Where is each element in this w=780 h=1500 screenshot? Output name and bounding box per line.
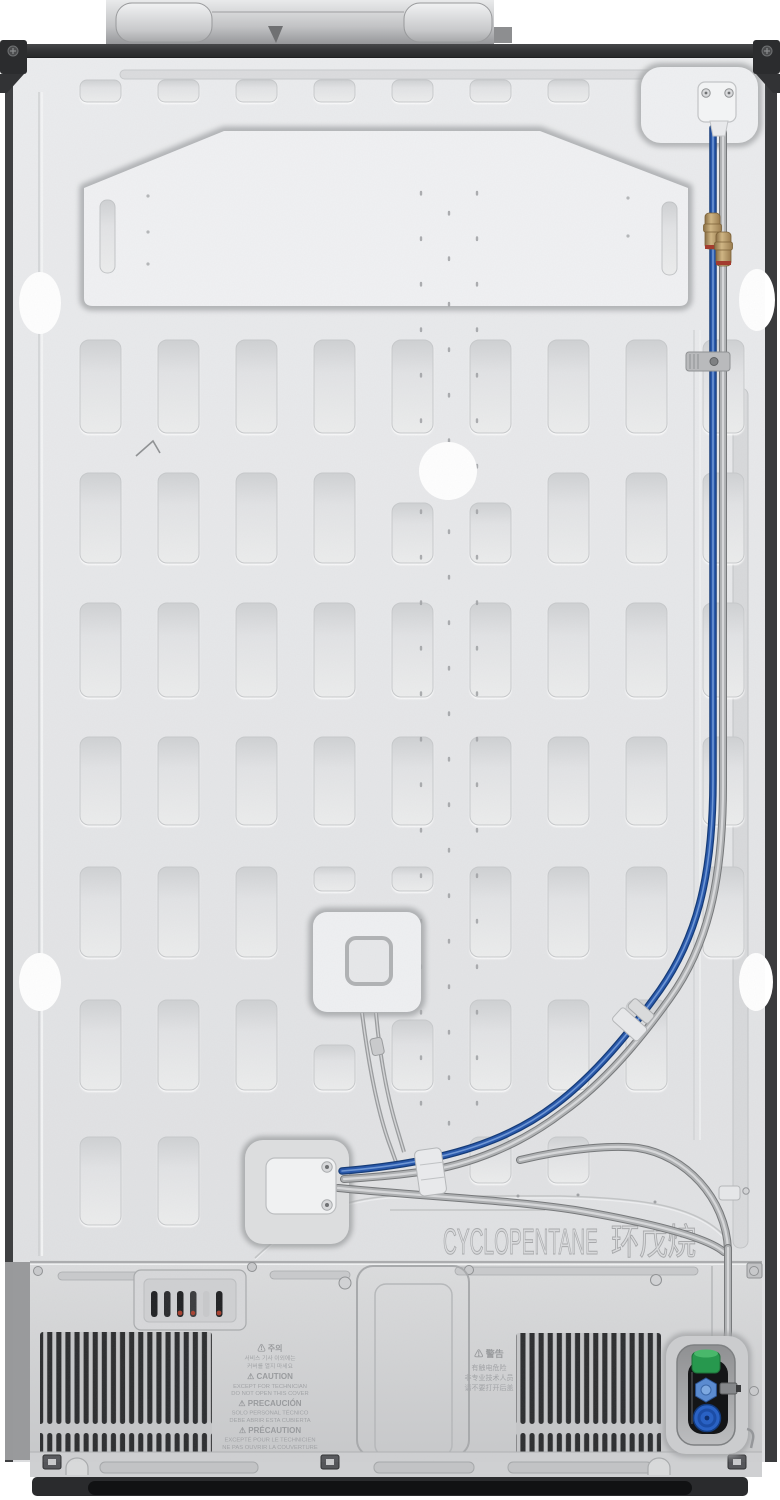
tube-clip-lower (414, 1147, 447, 1196)
top-condenser-tray (106, 0, 512, 44)
valve-green-cap (692, 1350, 720, 1374)
water-inlet-valve (666, 1336, 759, 1454)
metal-texture (13, 58, 765, 1462)
base-shadow (32, 1477, 748, 1496)
pocket-side-hole (750, 1387, 759, 1396)
tube-clip-top (686, 352, 730, 371)
tray-side-tab (494, 27, 512, 43)
refrigerator-back-photo: CYCLOPENTANE 环戊烷 (0, 0, 780, 1500)
right-side-edge (764, 58, 777, 1462)
valve-blue-cap (694, 1405, 721, 1432)
top-frame-bar (16, 44, 764, 60)
left-side-edge (5, 58, 14, 1462)
brass-coupling-gray (715, 232, 733, 266)
junction-cover-plate (266, 1158, 336, 1214)
back-panel-illustration: CYCLOPENTANE 环戊烷 (0, 0, 780, 1500)
